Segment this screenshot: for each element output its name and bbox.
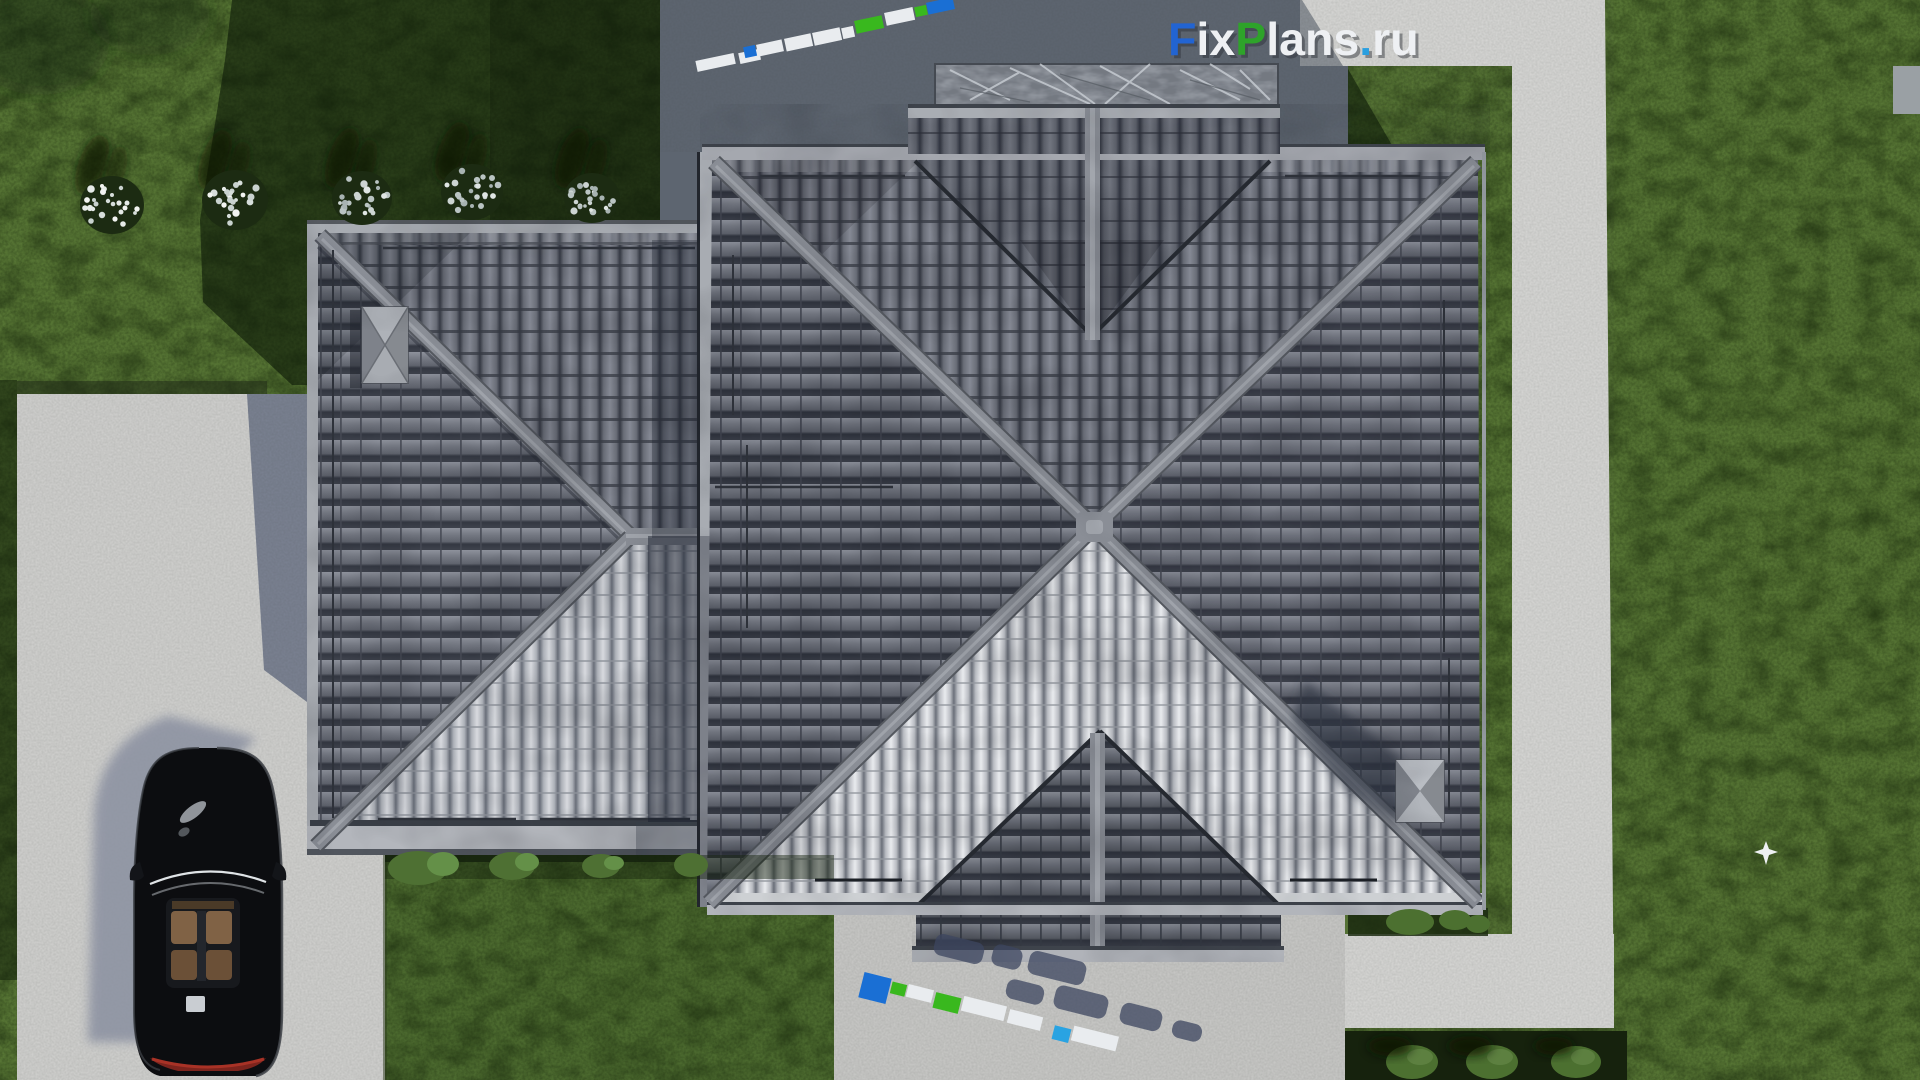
svg-text:FixPlans.ru: FixPlans.ru <box>1168 13 1419 65</box>
